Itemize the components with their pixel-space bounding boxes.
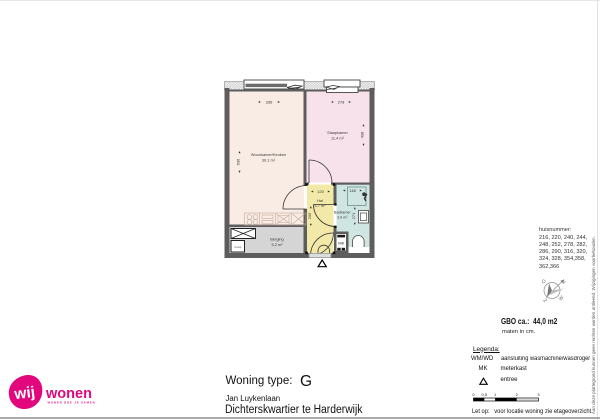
svg-text:5,2 m²: 5,2 m² — [271, 242, 283, 247]
svg-text:205: 205 — [307, 212, 312, 219]
svg-text:Hal: Hal — [317, 198, 323, 203]
svg-text:278: 278 — [338, 100, 345, 105]
svg-text:Slaapkamer: Slaapkamer — [327, 130, 348, 135]
svg-text:3: 3 — [537, 392, 540, 397]
svg-text:0: 0 — [472, 392, 475, 397]
svg-text:N: N — [560, 279, 567, 286]
svg-text:MK: MK — [338, 241, 344, 246]
svg-text:271: 271 — [351, 212, 356, 219]
svg-text:148: 148 — [349, 188, 356, 193]
svg-text:336: 336 — [266, 100, 273, 105]
svg-text:3,9 m²: 3,9 m² — [337, 216, 348, 220]
svg-text:wij: wij — [12, 384, 36, 404]
svg-text:11,4 m²: 11,4 m² — [331, 136, 345, 141]
svg-text:120: 120 — [317, 189, 324, 194]
svg-text:mvwp: mvwp — [234, 245, 242, 249]
svg-text:Berging: Berging — [270, 237, 283, 242]
svg-text:Woonkamer/Keuken: Woonkamer/Keuken — [251, 152, 286, 157]
svg-text:438: 438 — [360, 131, 365, 138]
svg-text:4,7 m²: 4,7 m² — [314, 203, 326, 208]
svg-text:WONEN DOE JE SAMEN: WONEN DOE JE SAMEN — [48, 401, 96, 405]
svg-text:0,5: 0,5 — [482, 392, 488, 397]
svg-text:Badkamer: Badkamer — [334, 211, 352, 215]
svg-text:636: 636 — [236, 158, 241, 165]
svg-text:30,1 m²: 30,1 m² — [262, 158, 276, 163]
svg-text:W: W — [558, 295, 566, 303]
svg-text:Z: Z — [542, 298, 548, 304]
svg-text:1: 1 — [494, 392, 497, 397]
svg-text:2: 2 — [516, 392, 519, 397]
